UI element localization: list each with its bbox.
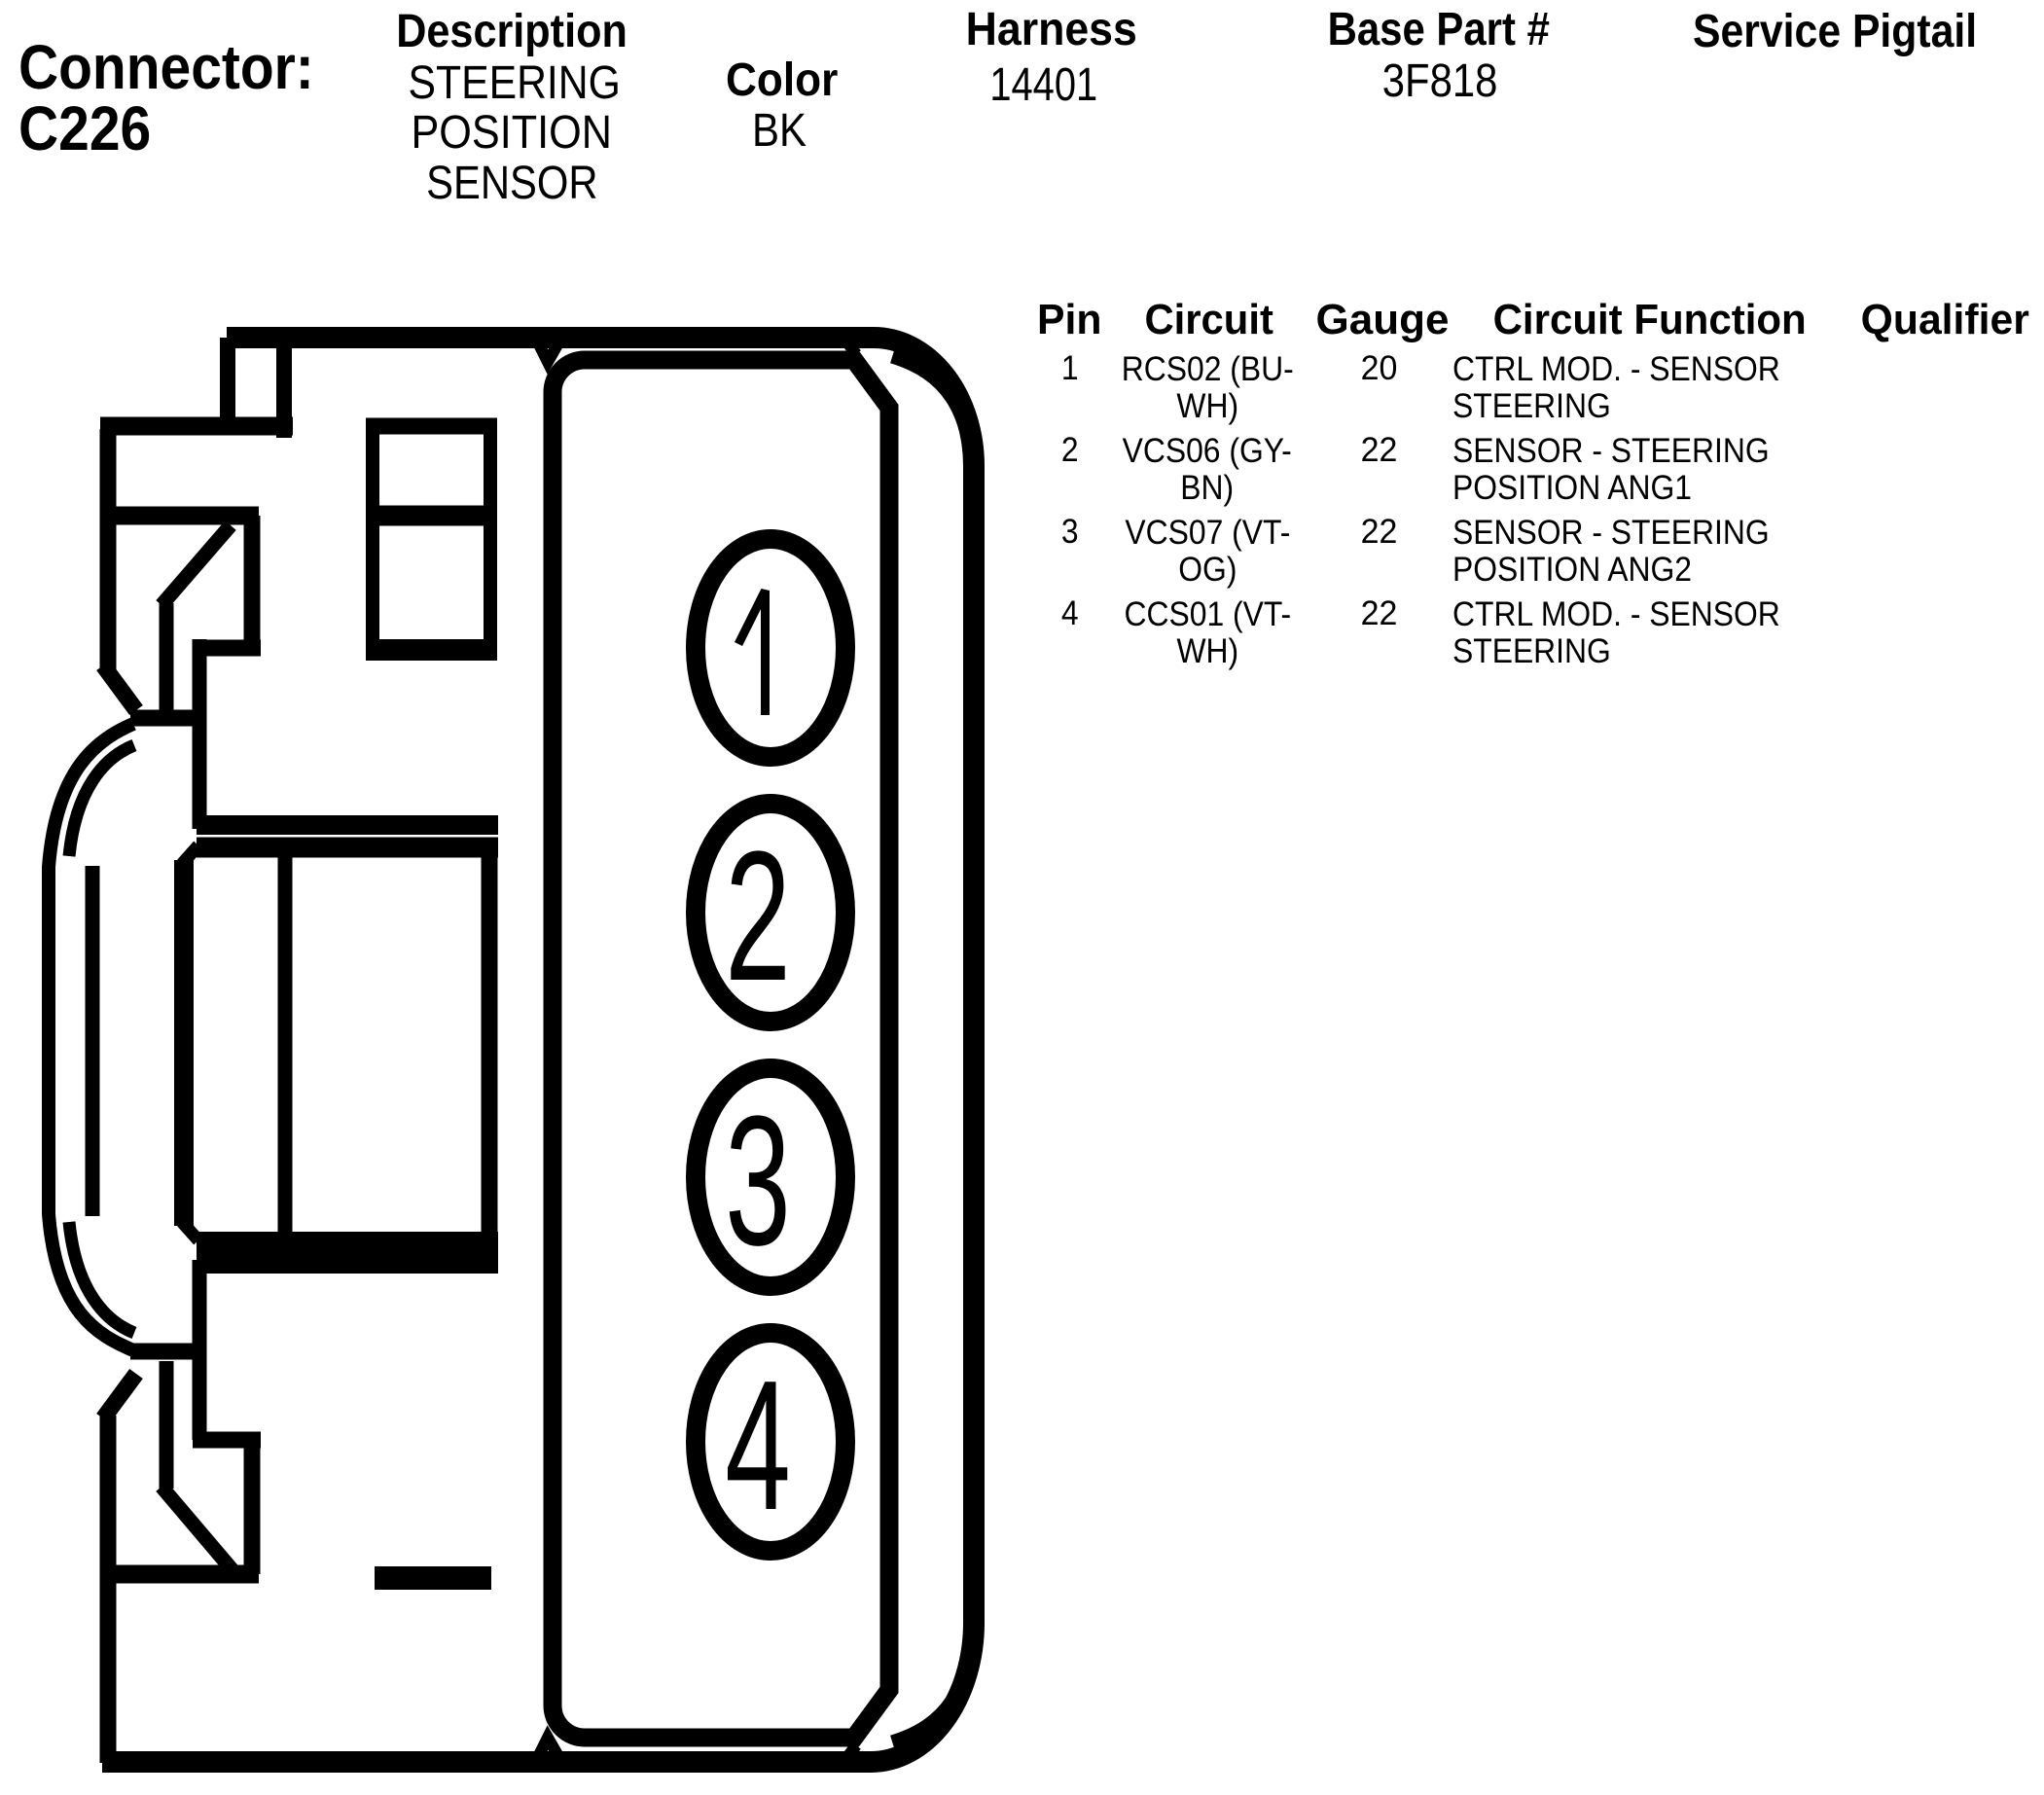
svg-text:4: 4	[725, 1342, 791, 1548]
svg-text:2: 2	[725, 812, 791, 1019]
svg-text:3: 3	[725, 1077, 791, 1283]
